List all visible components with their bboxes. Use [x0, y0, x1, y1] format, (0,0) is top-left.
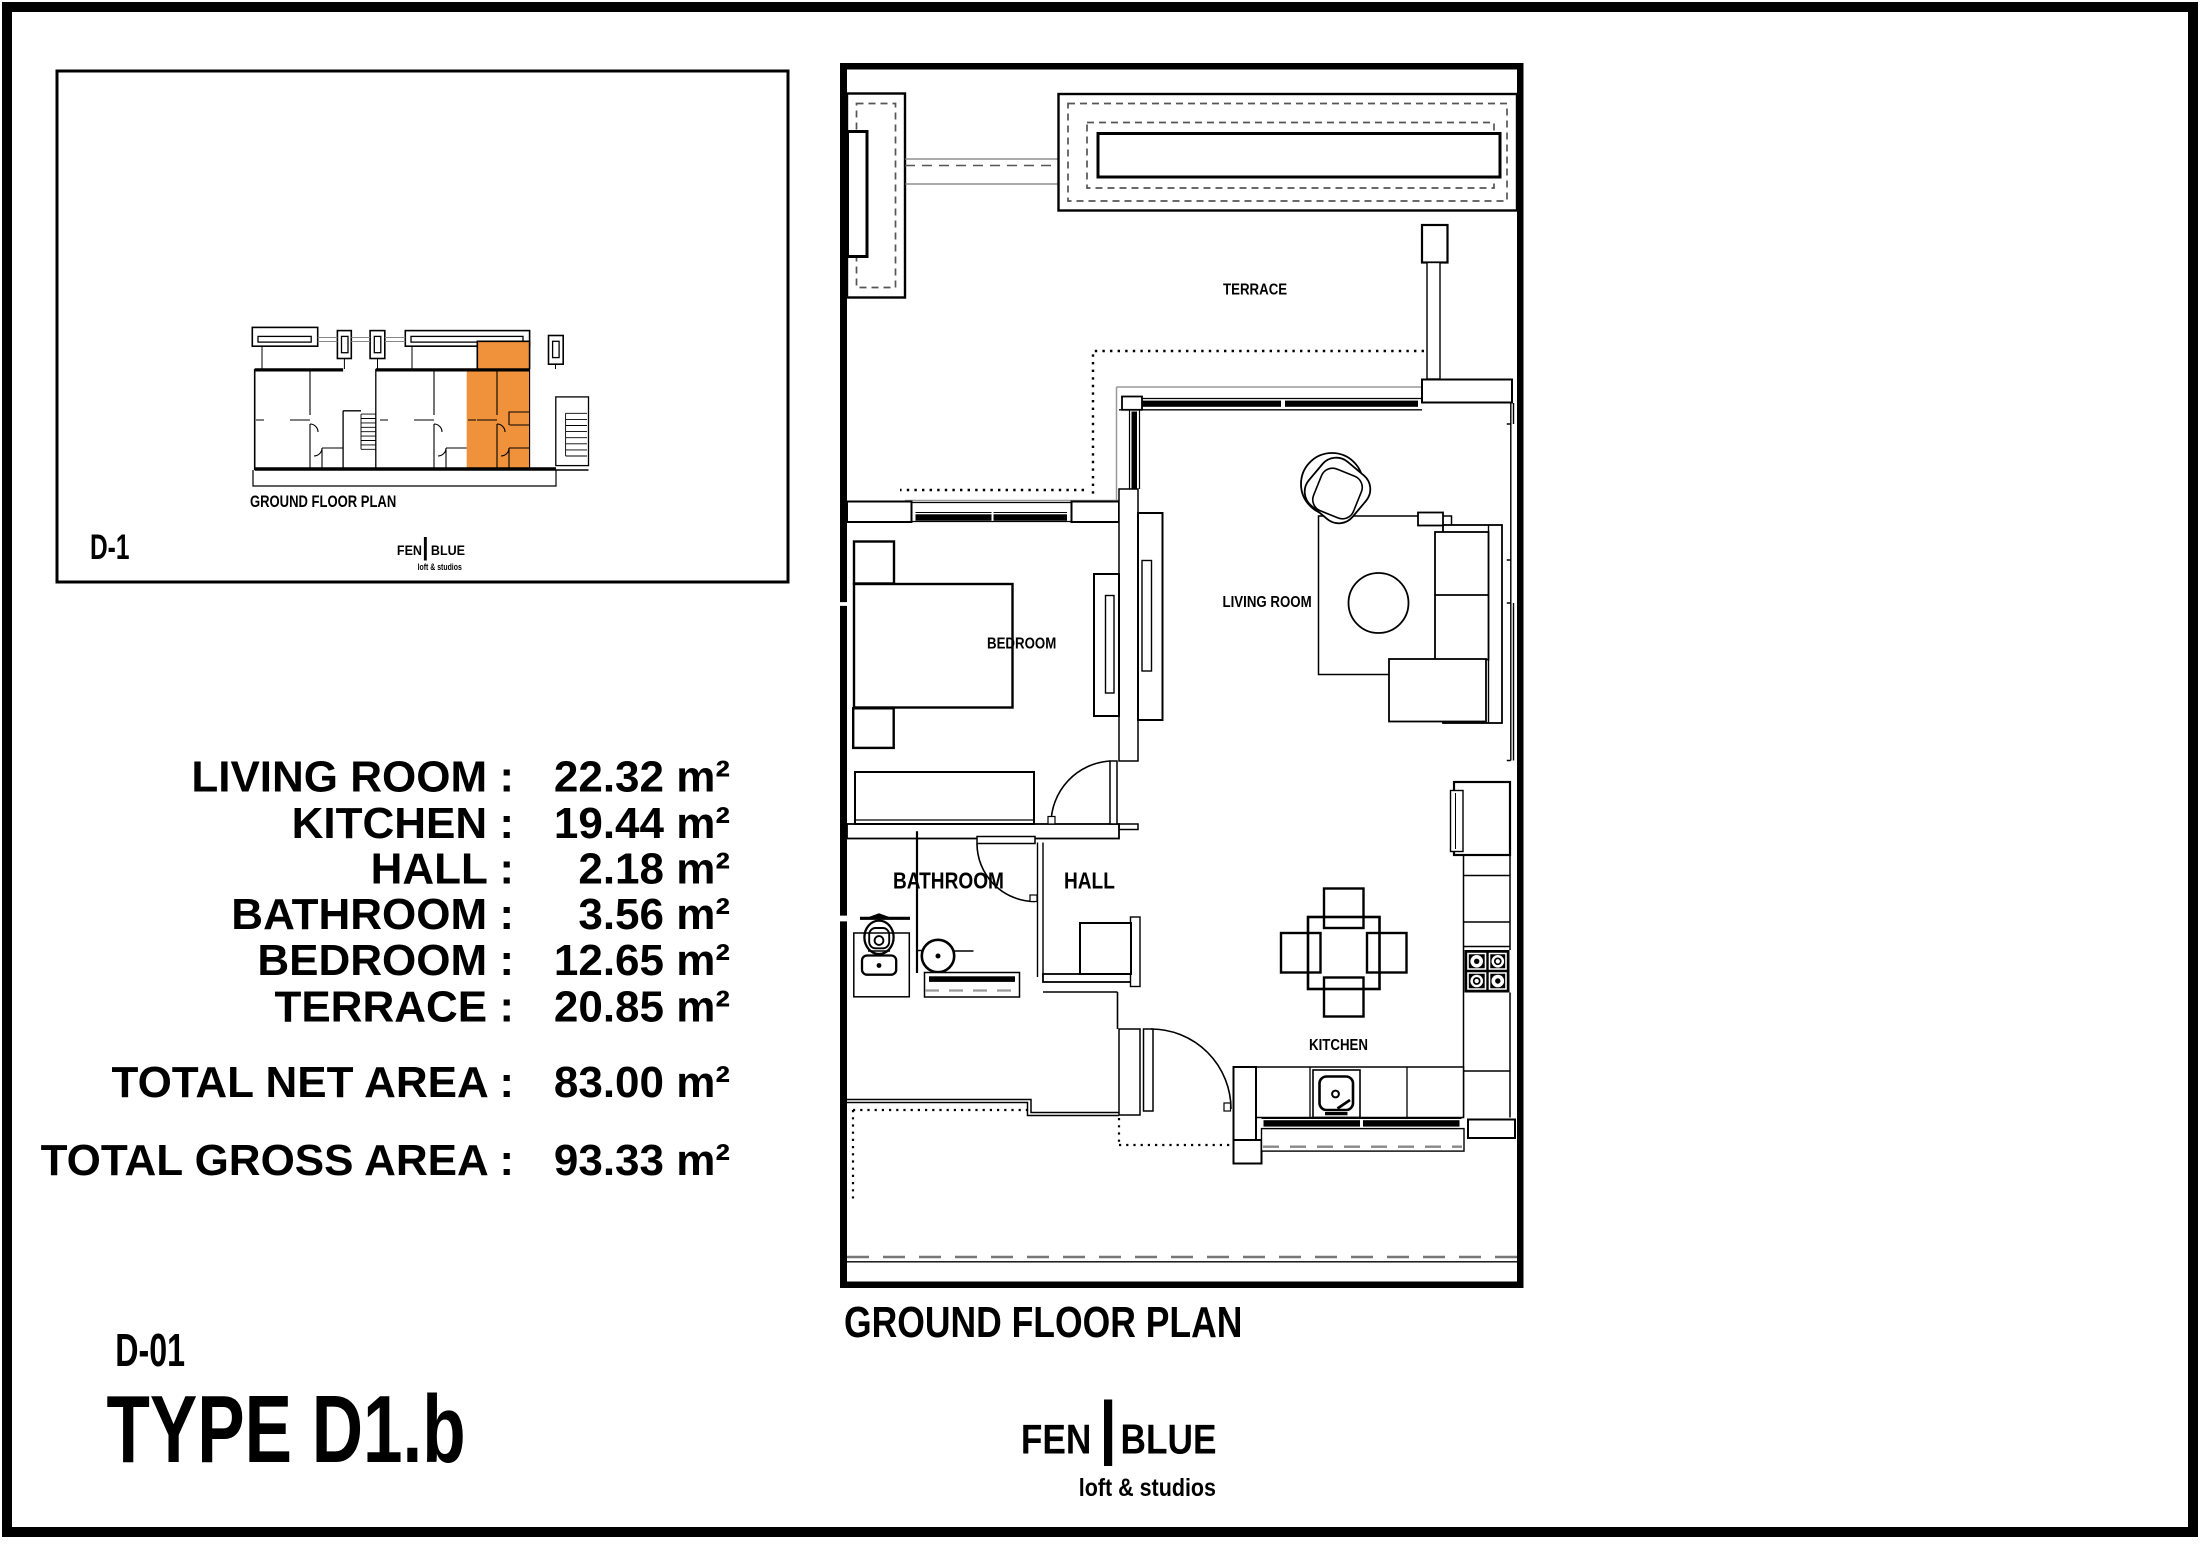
- svg-text:LIVING ROOM :: LIVING ROOM :: [191, 753, 514, 802]
- svg-text:D-01: D-01: [115, 1325, 185, 1376]
- svg-text:BEDROOM :: BEDROOM :: [257, 936, 514, 985]
- svg-text:83.00 m²: 83.00 m²: [554, 1058, 730, 1107]
- svg-text:TYPE D1.b: TYPE D1.b: [107, 1376, 466, 1483]
- svg-text:loft & studios: loft & studios: [418, 561, 463, 572]
- svg-text:TERRACE: TERRACE: [1223, 281, 1287, 298]
- svg-text:12.65 m²: 12.65 m²: [554, 936, 730, 985]
- svg-text:93.33 m²: 93.33 m²: [554, 1136, 730, 1185]
- svg-text:BLUE: BLUE: [431, 543, 465, 559]
- svg-text:BLUE: BLUE: [1121, 1417, 1217, 1464]
- svg-text:GROUND FLOOR PLAN: GROUND FLOOR PLAN: [844, 1298, 1242, 1346]
- svg-text:2.18 m²: 2.18 m²: [578, 845, 730, 894]
- svg-text:3.56 m²: 3.56 m²: [578, 890, 730, 939]
- svg-text:BATHROOM: BATHROOM: [893, 869, 1004, 894]
- svg-text:TERRACE :: TERRACE :: [274, 982, 514, 1031]
- svg-text:19.44 m²: 19.44 m²: [554, 799, 730, 848]
- svg-text:LIVING ROOM: LIVING ROOM: [1223, 594, 1312, 611]
- svg-text:KITCHEN: KITCHEN: [1309, 1037, 1368, 1054]
- svg-text:HALL: HALL: [1064, 869, 1115, 894]
- svg-text:BEDROOM: BEDROOM: [987, 635, 1056, 652]
- svg-text:TOTAL NET AREA :: TOTAL NET AREA :: [111, 1058, 514, 1107]
- svg-text:KITCHEN :: KITCHEN :: [292, 799, 514, 848]
- svg-text:GROUND FLOOR PLAN: GROUND FLOOR PLAN: [250, 494, 396, 512]
- svg-text:D-1: D-1: [90, 529, 129, 567]
- svg-text:22.32 m²: 22.32 m²: [554, 753, 730, 802]
- svg-text:loft & studios: loft & studios: [1079, 1473, 1216, 1501]
- svg-text:FEN: FEN: [397, 543, 422, 559]
- svg-text:TOTAL GROSS AREA :: TOTAL GROSS AREA :: [41, 1136, 514, 1185]
- svg-text:FEN: FEN: [1021, 1417, 1092, 1464]
- svg-text:20.85 m²: 20.85 m²: [554, 982, 730, 1031]
- svg-text:HALL :: HALL :: [371, 845, 514, 894]
- svg-text:BATHROOM :: BATHROOM :: [231, 890, 514, 939]
